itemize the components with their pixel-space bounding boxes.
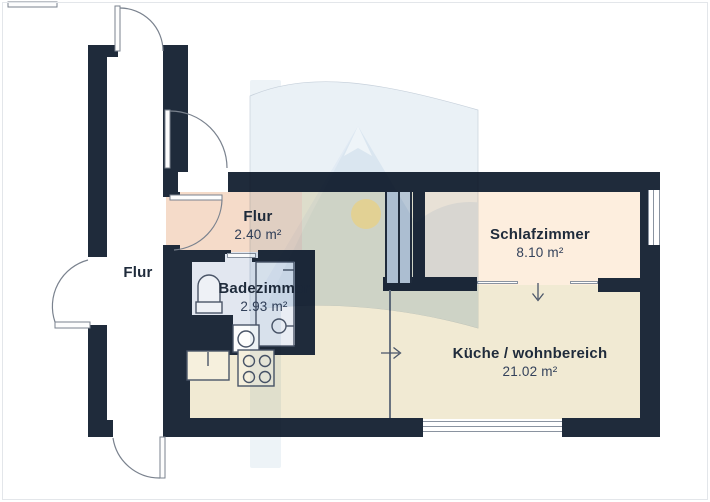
room-label-bedroom: Schlafzimmer 8.10 m² [490, 226, 590, 262]
room-label-corridor: Flur [123, 263, 152, 283]
bathroom-name: Badezimmer [218, 280, 309, 299]
kitchen-window-line1 [423, 421, 562, 422]
corridor-left-wall-upper [88, 45, 107, 257]
corridor-left-wall-lower [88, 325, 107, 420]
corridor-right-wall [163, 45, 188, 172]
room-label-entry-hall: Flur 2.40 m² [234, 208, 281, 244]
bath-slider-leaf [227, 253, 256, 258]
top-wall-main [228, 172, 660, 192]
right-wall-window-flank [640, 192, 648, 245]
glass-partition-mullion [398, 192, 400, 283]
watermark-snowcap-icon [344, 126, 372, 156]
entry-hall-name: Flur [234, 208, 281, 227]
kitchen-window-line2 [423, 426, 562, 427]
bedroom-slider-track-left [477, 281, 518, 284]
corridor-top-door-arc [120, 8, 163, 51]
entry-hall-area: 2.40 m² [234, 227, 281, 244]
bath-north-wall-left [163, 250, 225, 262]
corridor-bottom-block [88, 420, 113, 437]
cut-door-leaf-top-left [8, 2, 57, 7]
kitchen-window-line3 [423, 431, 562, 432]
glass-partition [385, 192, 412, 283]
bedroom-slider-track-right [570, 281, 598, 284]
corridor-bottom-door-leaf [160, 437, 165, 478]
bath-slider-notch-b [252, 258, 258, 262]
kitchen-nook-divider [389, 290, 391, 418]
corridor-floor [107, 55, 163, 437]
corridor-left-door-arc [52, 260, 88, 322]
floor-plan-canvas: Flur Flur 2.40 m² Badezimmer 2.93 m² Sch… [0, 0, 710, 502]
bathroom-area: 2.93 m² [218, 299, 309, 316]
corridor-left-door-leaf [55, 322, 90, 328]
kitchen-window [423, 419, 562, 434]
living-name: Küche / wohnbereich [453, 345, 608, 364]
bedroom-window [648, 190, 660, 245]
top-wall-west-stub [163, 172, 178, 192]
corridor-name: Flur [123, 264, 152, 281]
bedroom-west-wall [413, 192, 425, 283]
bedroom-window-mullion [653, 190, 654, 245]
bottom-wall-left [163, 418, 423, 437]
living-area: 21.02 m² [453, 364, 608, 381]
room-label-living: Küche / wohnbereich 21.02 m² [453, 345, 608, 381]
west-wall-stub [163, 192, 180, 197]
room-label-bathroom: Badezimmer 2.93 m² [218, 280, 309, 316]
corridor-bottom-door-arc [113, 438, 160, 478]
bedroom-area: 8.10 m² [490, 245, 590, 262]
bedroom-south-wall-right [598, 278, 640, 292]
right-wall [640, 245, 660, 437]
bedroom-name: Schlafzimmer [490, 226, 590, 245]
